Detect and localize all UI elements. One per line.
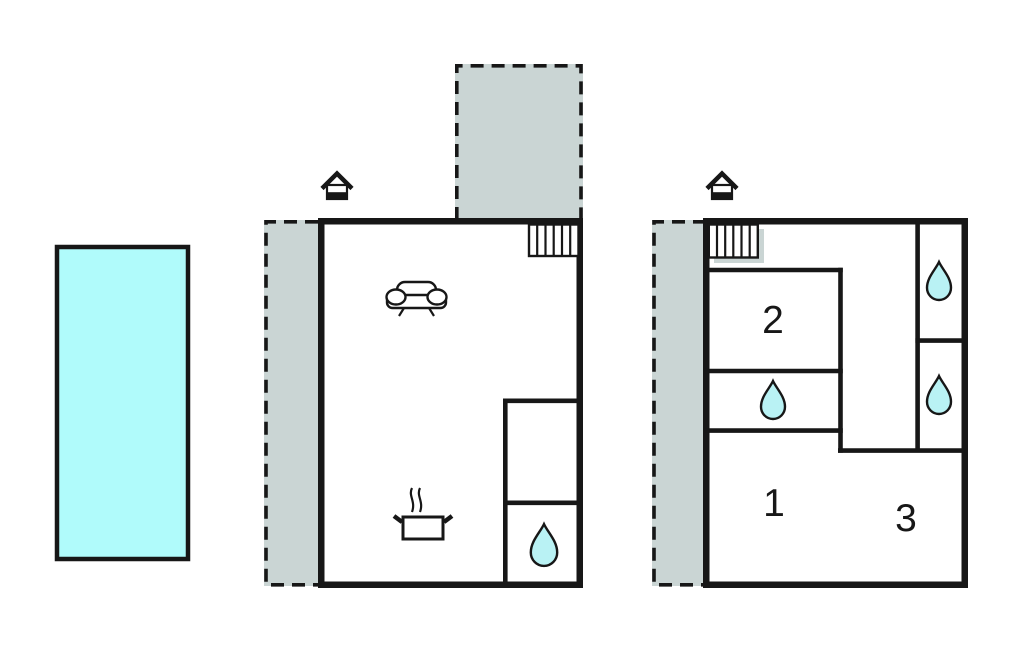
room-label-2: 2 [762, 299, 784, 342]
stairs-icon [529, 225, 579, 257]
pool-water [57, 247, 188, 559]
house-door [712, 192, 733, 199]
terrace-top [455, 64, 583, 221]
house-icon [707, 174, 737, 200]
ground-floor-plan [264, 64, 583, 586]
house-door [327, 192, 348, 199]
stairs-icon [709, 225, 764, 264]
house-icon [322, 174, 352, 200]
terrace-left [264, 220, 318, 586]
sofa-arm [428, 290, 447, 305]
first-floor-plan: 1 2 3 [652, 174, 965, 587]
sofa-arm [387, 290, 406, 305]
room-label-1: 1 [763, 482, 785, 525]
terrace-left [652, 220, 706, 586]
swimming-pool [57, 247, 188, 559]
floor-plan-canvas: 1 2 3 [0, 0, 1024, 652]
floor-plan-page: 1 2 3 [0, 0, 1024, 652]
room-label-3: 3 [895, 497, 917, 540]
pot-body [403, 517, 443, 539]
